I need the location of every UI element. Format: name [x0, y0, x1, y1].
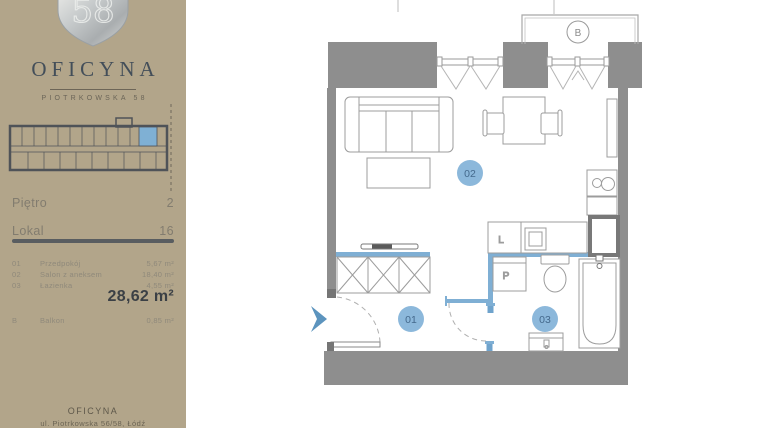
- brand-logo-shield-icon: 58: [50, 0, 136, 52]
- washing-machine: [493, 257, 526, 291]
- unit-value: 16: [159, 224, 174, 238]
- bathtub: [579, 255, 620, 348]
- plumbing-riser-icon: [486, 303, 495, 313]
- unit-row: Lokal 16: [12, 224, 174, 238]
- partition-bath-west: [488, 257, 493, 302]
- brand-divider: [50, 89, 136, 90]
- entrance-door-swing: [337, 297, 380, 342]
- door-hinge: [327, 289, 336, 298]
- balcony-area: 0,85 m²: [146, 316, 174, 325]
- wall-top-left: [328, 42, 437, 88]
- room-number: 02: [12, 270, 40, 279]
- room-number: 03: [12, 281, 40, 290]
- context-lines: [398, 0, 554, 14]
- room-name: Salon z aneksem: [40, 270, 142, 279]
- floor-row: Piętro 2: [12, 196, 174, 210]
- shaft: [590, 217, 618, 255]
- room-02-label: 02: [464, 168, 476, 180]
- plumbing-riser-icon: [485, 341, 494, 351]
- logo-number: 58: [71, 0, 114, 31]
- apartment-floorplan: B: [186, 0, 760, 428]
- sidebar: 58 OFICYNA PIOTRKOWSKA 58: [0, 0, 186, 428]
- wall-bottom: [324, 351, 628, 385]
- floorplan-card: 58 OFICYNA PIOTRKOWSKA 58: [0, 0, 760, 428]
- room-03-label: 03: [539, 314, 551, 326]
- entrance-door-leaf: [331, 342, 380, 347]
- coffee-table: [367, 158, 430, 188]
- fridge-label: L: [498, 235, 504, 246]
- room-name: Przedpokój: [40, 259, 146, 268]
- door-hinge: [327, 342, 334, 351]
- toilet: [541, 255, 569, 292]
- room-area: 18,40 m²: [142, 270, 174, 279]
- room-list-item: 02 Salon z aneksem 18,40 m²: [12, 270, 174, 279]
- corridor-lines: [11, 146, 166, 152]
- washbasin: [529, 333, 563, 351]
- partition-bath-south: [447, 299, 493, 303]
- room-number: 01: [12, 259, 40, 268]
- dining-set: [483, 97, 562, 144]
- chair: [541, 110, 562, 136]
- wall-top-middle: [503, 42, 548, 88]
- footer-brand: OFICYNA: [0, 406, 186, 416]
- bathroom-door-swing: [449, 303, 486, 341]
- room-01-label: 01: [405, 314, 417, 326]
- base-cabinet: [587, 197, 617, 215]
- bathroom: P: [493, 255, 620, 351]
- dining-table: [503, 97, 545, 144]
- hallway-furniture: [337, 257, 430, 293]
- brand-name: OFICYNA: [0, 57, 186, 82]
- room-list-item: 01 Przedpokój 5,67 m²: [12, 259, 174, 268]
- balcony: B: [522, 15, 638, 44]
- total-area: 28,62 m²: [108, 288, 174, 306]
- window: [437, 57, 503, 89]
- washer-label: P: [503, 271, 510, 282]
- wall-top-right: [608, 42, 642, 88]
- sofa: [345, 97, 453, 152]
- building-overview-plan: [8, 102, 180, 196]
- room-area: 5,67 m²: [146, 259, 174, 268]
- brand-subtitle: PIOTRKOWSKA 58: [0, 95, 186, 102]
- unit-label: Lokal: [12, 224, 44, 238]
- room-partitions: [22, 127, 156, 169]
- balcony-number: B: [12, 316, 40, 325]
- entrance-arrow-icon: [311, 306, 327, 332]
- cooktop: [587, 170, 617, 196]
- tv: [361, 244, 418, 249]
- balcony-label: B: [575, 28, 582, 39]
- balcony-door: [547, 57, 609, 89]
- selected-unit-highlight[interactable]: [139, 127, 157, 146]
- tall-cabinet: [607, 99, 617, 157]
- wall-left: [327, 88, 336, 295]
- floor-label: Piętro: [12, 196, 47, 210]
- unit-divider: [12, 239, 174, 243]
- footer-address: ul. Piotrkowska 56/58, Łódź: [0, 419, 186, 428]
- wardrobe: [337, 257, 430, 293]
- balcony-list-item: B Balkon 0,85 m²: [12, 316, 174, 325]
- partition-hall-living: [336, 252, 430, 257]
- chair: [483, 110, 504, 136]
- balcony-name: Balkon: [40, 316, 146, 325]
- floor-value: 2: [167, 196, 174, 210]
